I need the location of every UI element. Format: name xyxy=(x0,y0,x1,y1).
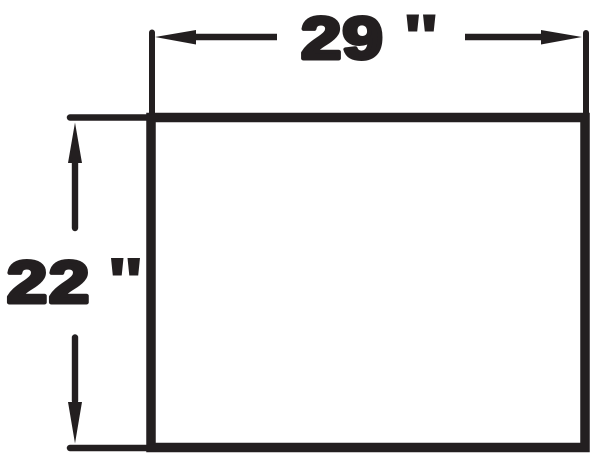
svg-text:9: 9 xyxy=(342,6,382,72)
svg-text:2: 2 xyxy=(49,250,89,316)
svg-text:2: 2 xyxy=(301,6,341,72)
svg-text:2: 2 xyxy=(7,250,47,316)
